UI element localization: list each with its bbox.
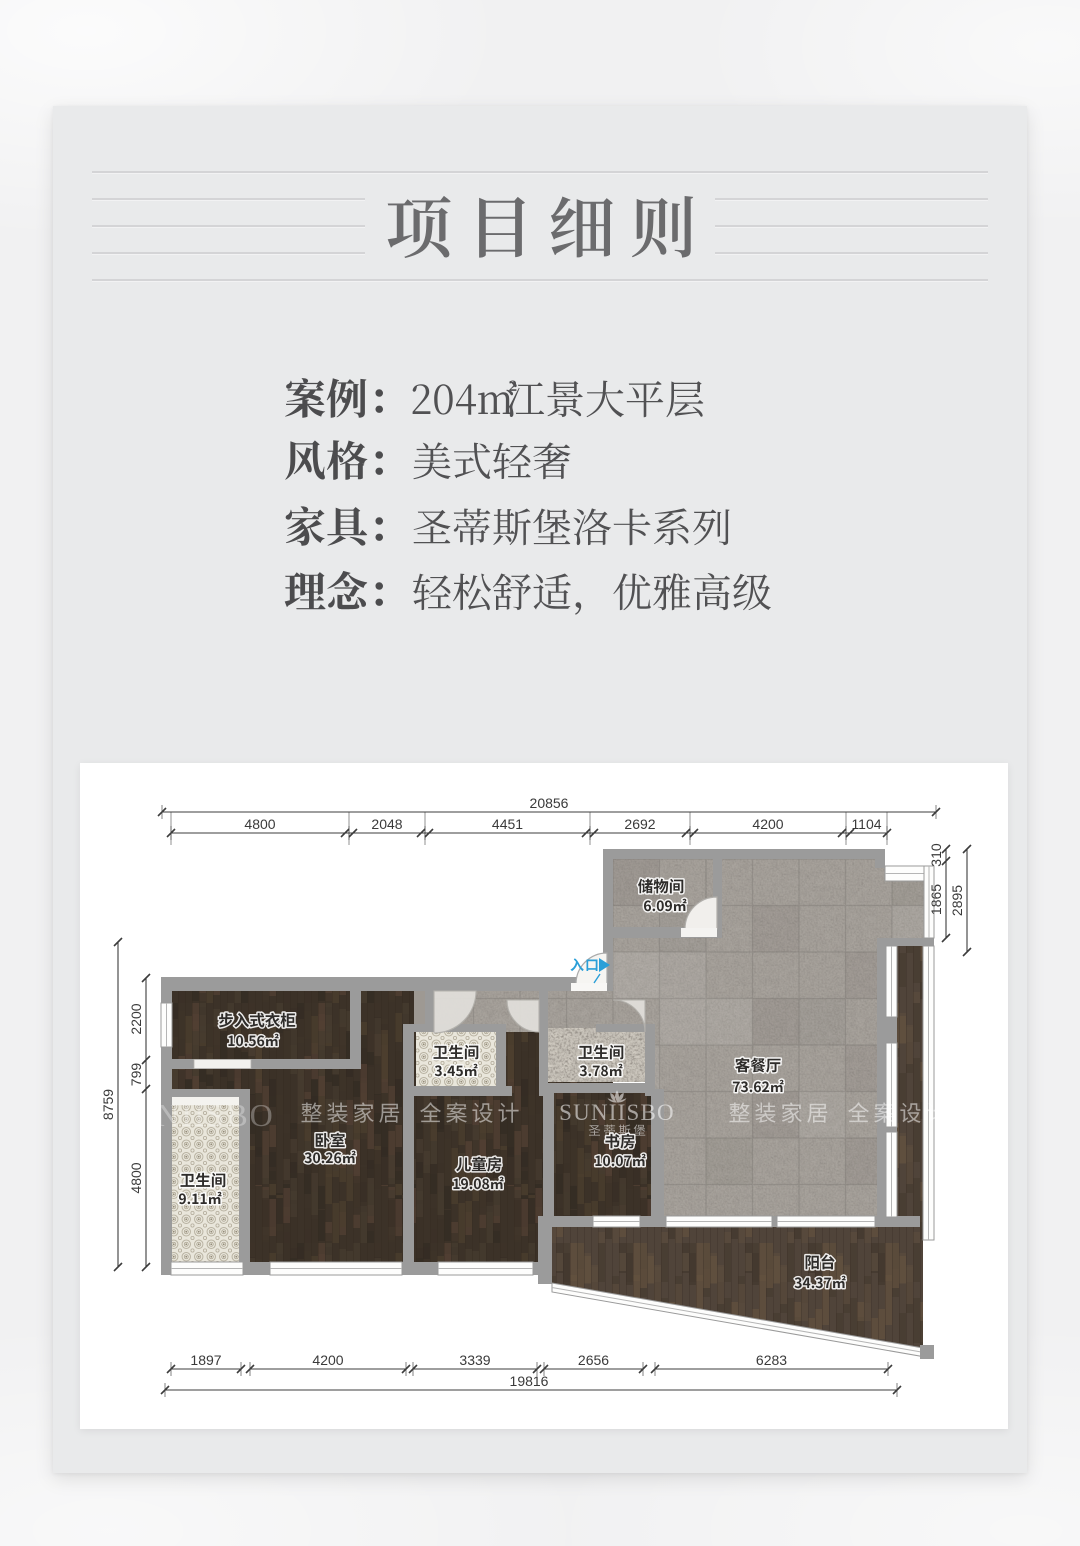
- svg-text:20856: 20856: [530, 795, 569, 811]
- svg-text:4200: 4200: [752, 816, 783, 832]
- svg-text:2692: 2692: [624, 816, 655, 832]
- svg-text:2048: 2048: [371, 816, 402, 832]
- svg-text:2200: 2200: [128, 1003, 144, 1034]
- svg-text:4800: 4800: [244, 816, 275, 832]
- svg-text:4200: 4200: [312, 1352, 343, 1368]
- svg-text:310: 310: [928, 843, 944, 867]
- svg-text:1865: 1865: [928, 884, 944, 915]
- svg-text:SUNIISBO: SUNIISBO: [559, 1100, 675, 1125]
- svg-text:1104: 1104: [851, 816, 881, 832]
- svg-text:799: 799: [128, 1063, 144, 1087]
- svg-text:SUNIISBO: SUNIISBO: [111, 1097, 275, 1133]
- svg-text:1897: 1897: [190, 1352, 221, 1368]
- svg-text:8759: 8759: [100, 1089, 116, 1120]
- svg-text:2656: 2656: [578, 1352, 609, 1368]
- svg-text:19816: 19816: [510, 1373, 549, 1389]
- svg-text:3339: 3339: [459, 1352, 490, 1368]
- svg-text:2895: 2895: [949, 885, 965, 916]
- svg-text:4451: 4451: [492, 816, 523, 832]
- svg-text:SUNIISBO: SUNIISBO: [952, 1100, 1008, 1125]
- svg-text:4800: 4800: [128, 1162, 144, 1193]
- svg-text:6283: 6283: [756, 1352, 787, 1368]
